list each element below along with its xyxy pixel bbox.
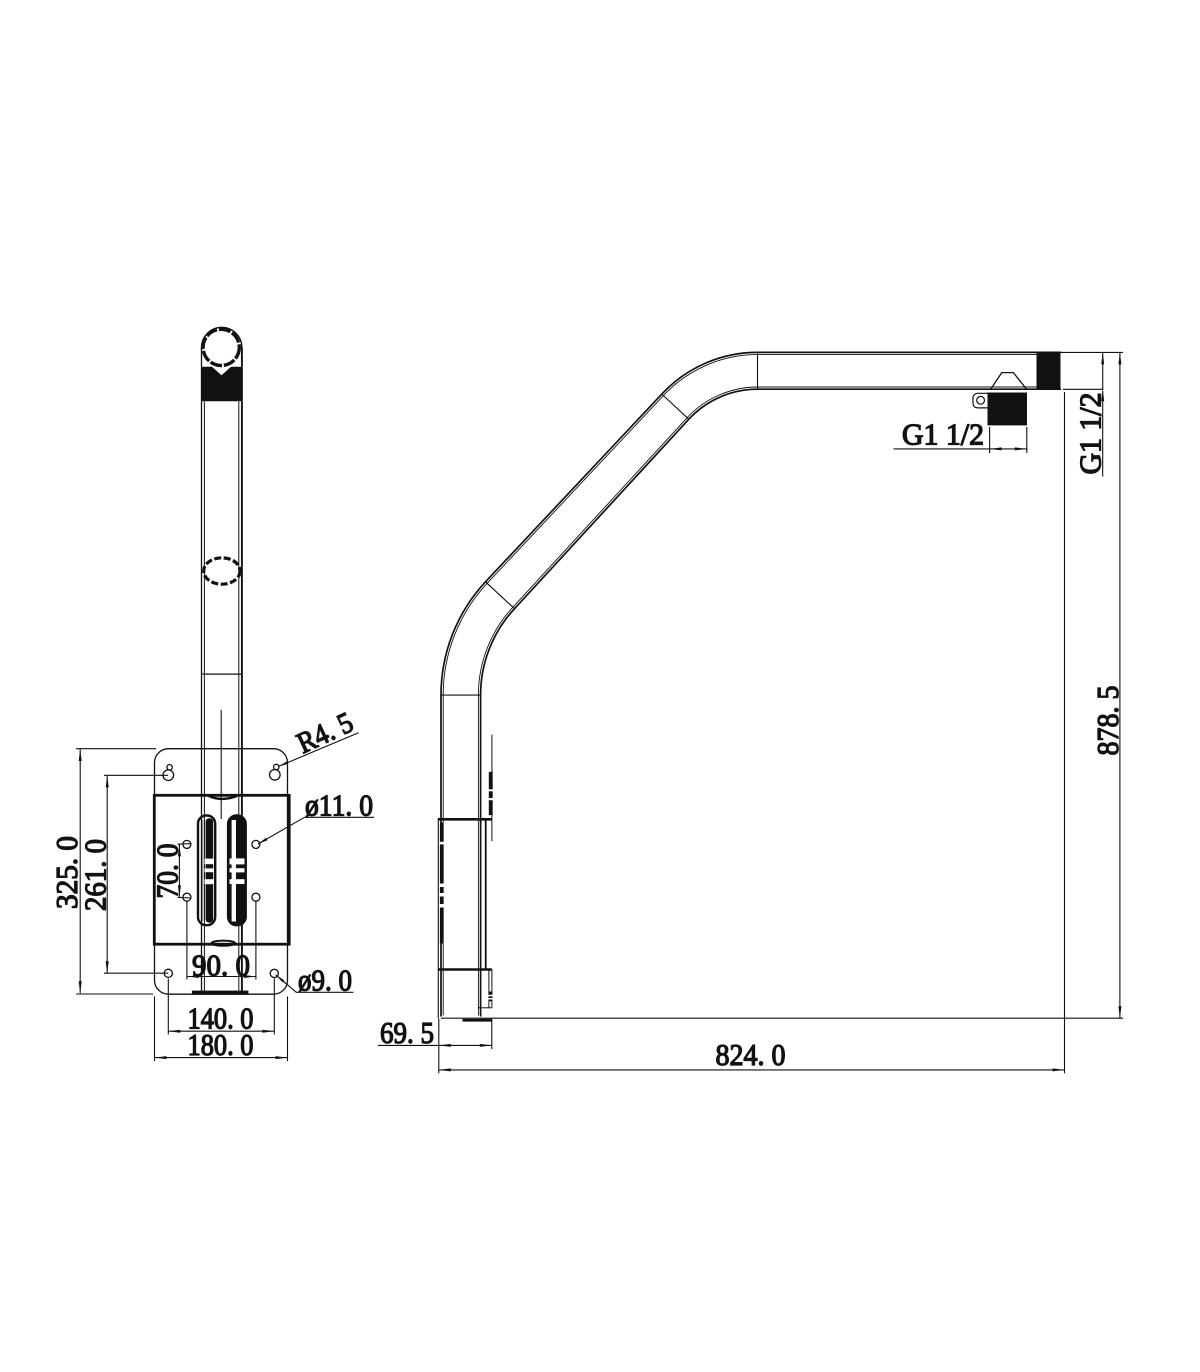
svg-text:70. 0: 70. 0 <box>150 844 185 899</box>
svg-text:878. 5: 878. 5 <box>1090 686 1125 756</box>
svg-text:ø9. 0: ø9. 0 <box>298 963 352 998</box>
svg-text:R4. 5: R4. 5 <box>292 707 358 761</box>
svg-text:ø11. 0: ø11. 0 <box>305 788 373 823</box>
svg-text:69. 5: 69. 5 <box>380 1015 434 1050</box>
svg-text:G1 1/2: G1 1/2 <box>902 416 984 451</box>
svg-text:180. 0: 180. 0 <box>188 1027 254 1062</box>
svg-text:824. 0: 824. 0 <box>716 1037 786 1072</box>
svg-text:90. 0: 90. 0 <box>192 947 250 982</box>
svg-text:261. 0: 261. 0 <box>78 839 113 911</box>
svg-text:G1 1/2: G1 1/2 <box>1073 393 1108 475</box>
